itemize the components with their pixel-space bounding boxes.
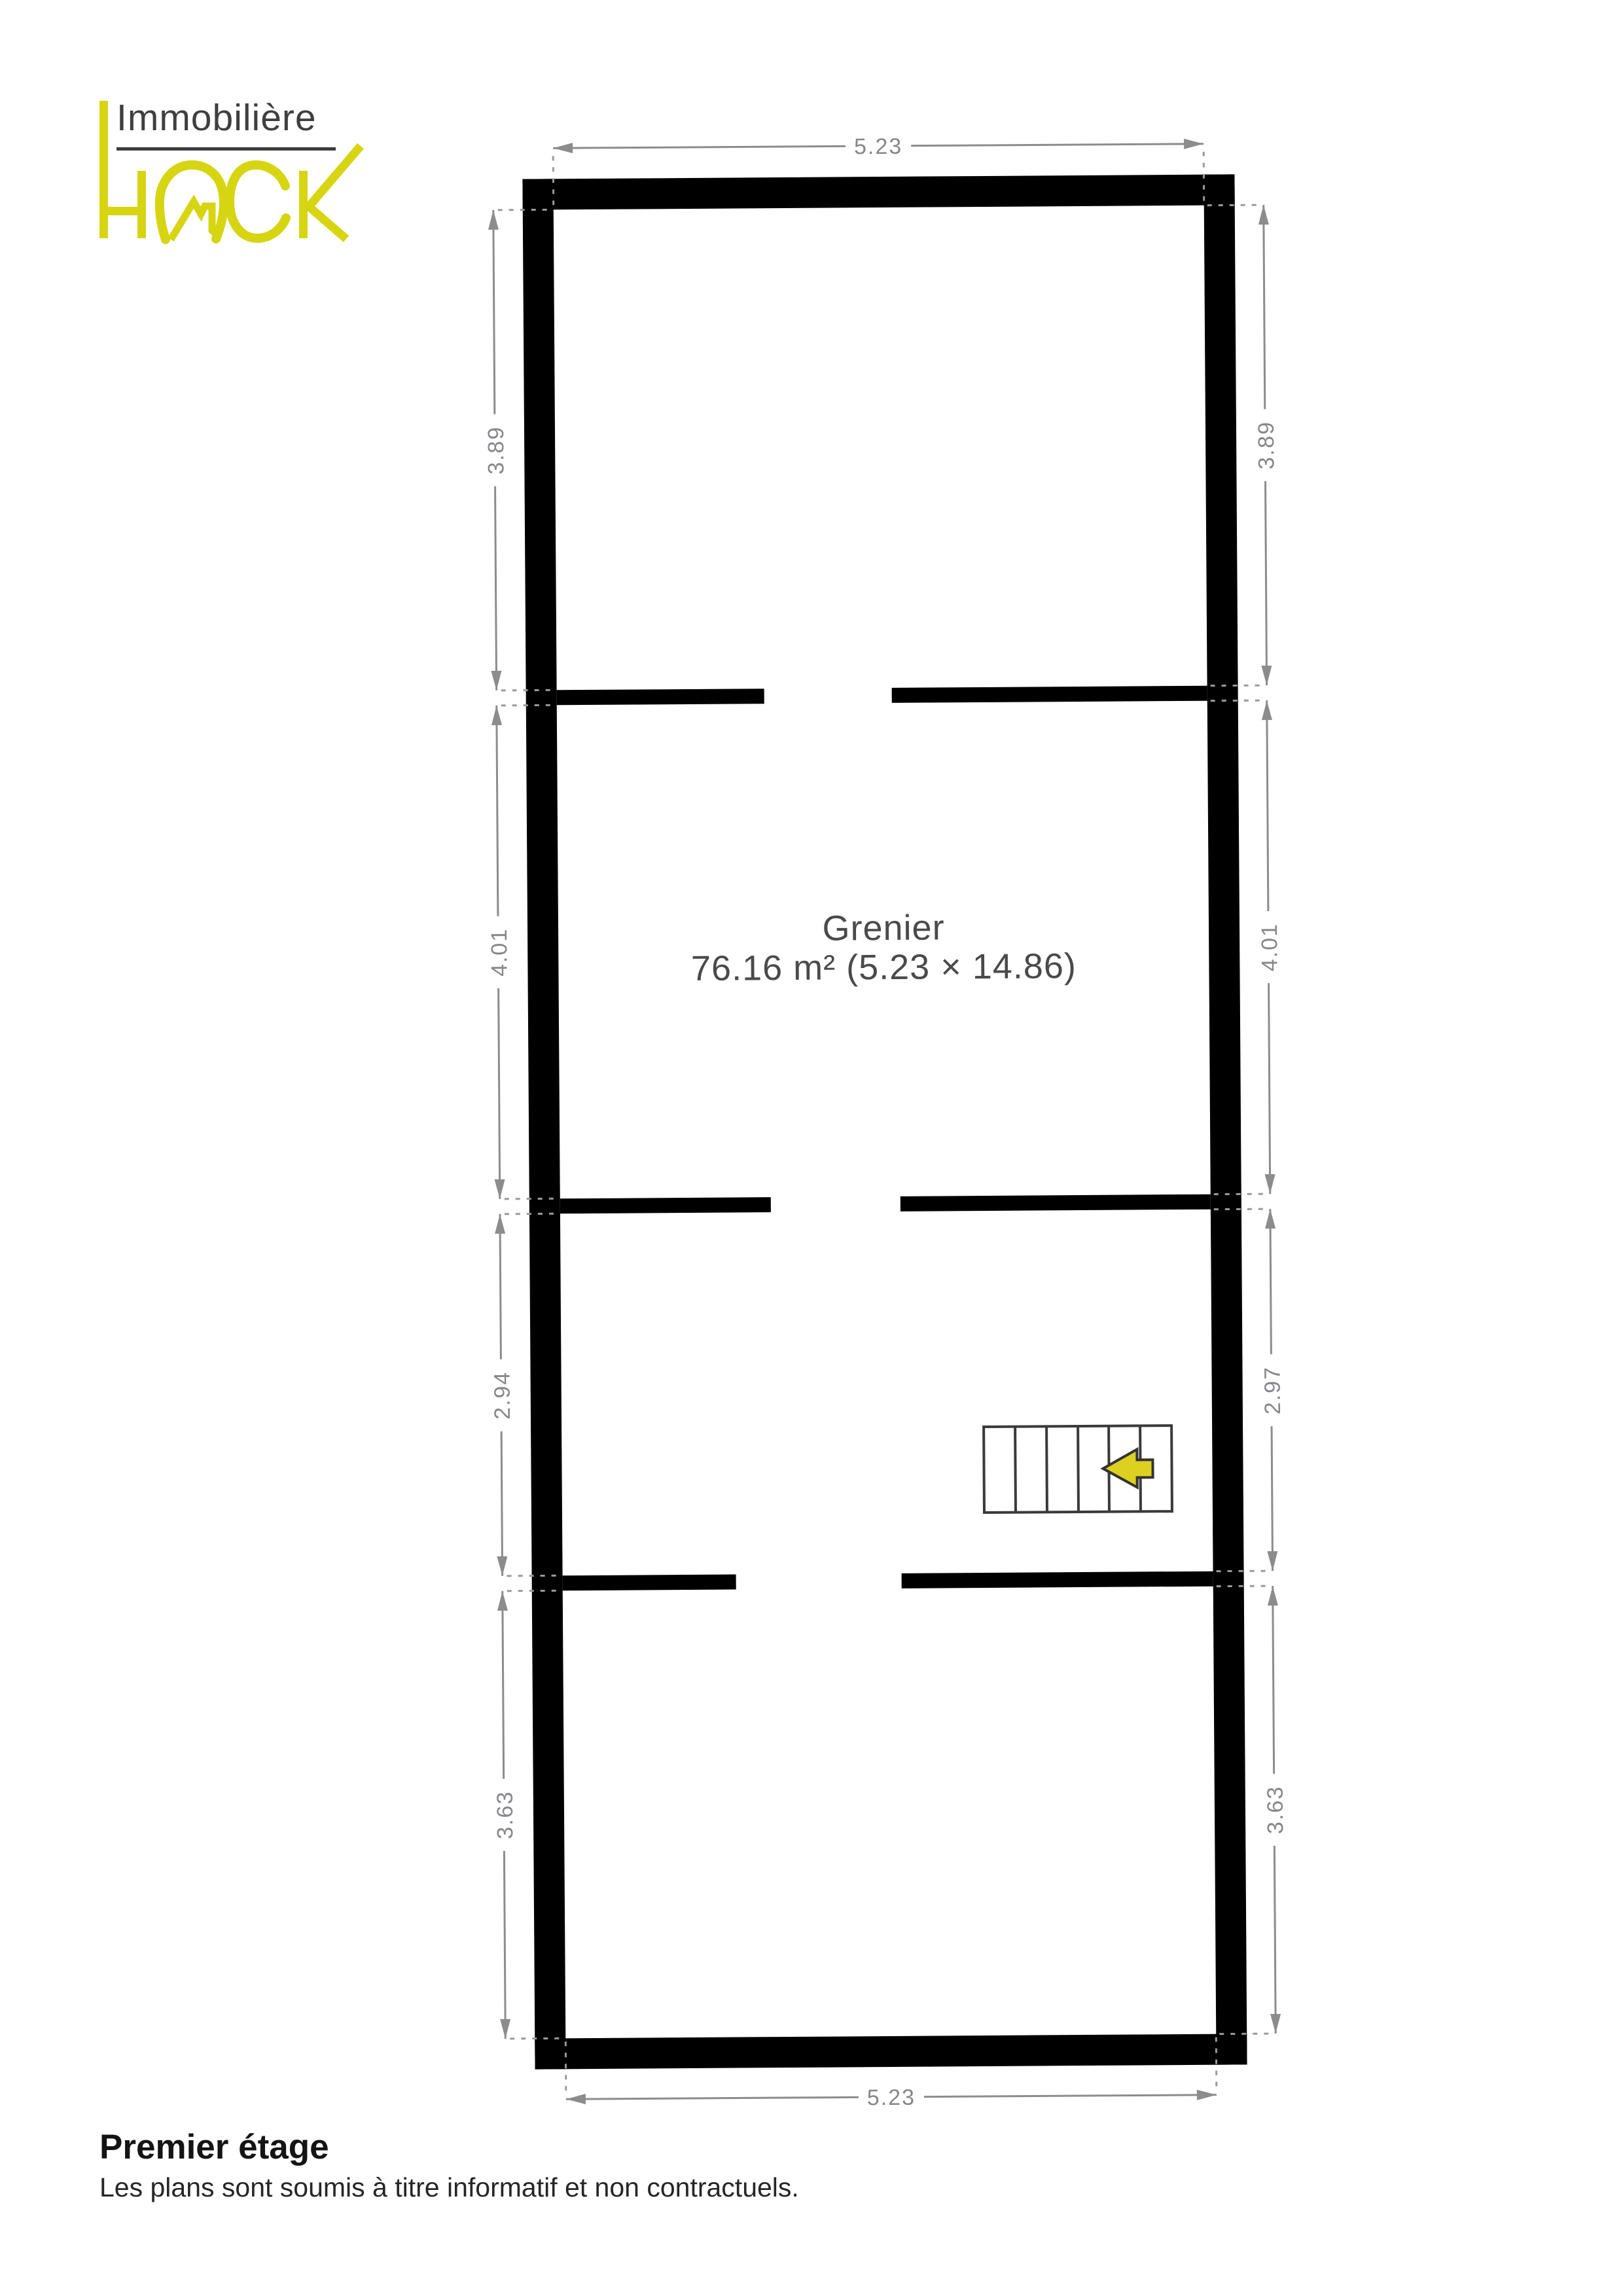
logo-hack-wordmark [99, 146, 361, 240]
logo-divider [116, 147, 336, 151]
dimension-line [495, 486, 497, 691]
dimension-label-bottom: 5.23 [867, 2085, 916, 2110]
wall-segment [902, 1571, 1213, 1588]
dimension-label-right-1: 3.89 [1254, 421, 1279, 469]
dimension-line [493, 210, 495, 414]
dimension-label-left-3: 2.94 [490, 1371, 515, 1420]
staircase [984, 1426, 1172, 1513]
exterior-walls [522, 174, 1247, 2069]
dimension-label-right-3: 2.97 [1260, 1366, 1285, 1414]
dimension-arrowhead [1261, 666, 1272, 685]
dimension-label-right-2: 4.01 [1257, 923, 1282, 971]
logo-letter-h [137, 171, 146, 238]
dimension-label-left-4: 3.63 [493, 1791, 518, 1839]
dimension-line [504, 1851, 505, 2039]
wall-segment [901, 1194, 1211, 1211]
dimension-arrowhead [1262, 700, 1272, 720]
wall-segment [522, 174, 1234, 209]
dimension-line [499, 988, 500, 1199]
dimension-arrowhead [1267, 1551, 1277, 1571]
logo-letter-h-bar [99, 207, 146, 215]
wall-segment [560, 1197, 771, 1213]
dimension-arrowhead [1197, 2090, 1217, 2100]
logo-letter-c [230, 165, 286, 238]
dimension-line [1264, 205, 1265, 409]
dimension-line [924, 2095, 1217, 2097]
dimension-arrowhead [491, 706, 502, 725]
room-name: Grenier [822, 908, 944, 948]
dimension-line [1272, 1426, 1272, 1571]
dimension-arrowhead [1270, 2014, 1281, 2034]
dimension-line [1274, 1846, 1275, 2034]
logo-accent-bar [99, 101, 108, 238]
dimension-arrowhead [1184, 139, 1204, 149]
room-area: 76.16 m² (5.23 × 14.86) [691, 946, 1077, 988]
logo-brand-name: Immobilière [116, 97, 317, 139]
dimension-line [1267, 700, 1268, 911]
logo-roofline-icon [171, 202, 217, 240]
dimension-line [566, 2097, 859, 2099]
dimension-line [1266, 481, 1267, 685]
dimension-line [1270, 1209, 1271, 1354]
dimension-line [497, 706, 498, 916]
wall-segment [1204, 174, 1247, 2064]
floor-title: Premier étage [99, 2128, 329, 2166]
dimension-arrowhead [1265, 1174, 1275, 1194]
dimension-arrowhead [497, 1556, 507, 1576]
floor-plan: Grenier 76.16 m² (5.23 × 14.86) 5.23 [482, 132, 1290, 2113]
dimension-line [500, 1214, 501, 1359]
logo-letter-k-lower [307, 205, 346, 239]
dimension-label-left-1: 3.89 [484, 426, 508, 475]
logo-letter-k-upper [307, 146, 361, 209]
stair-tread-line [1046, 1426, 1047, 1512]
dimension-arrowhead [1258, 205, 1269, 224]
stair-tread-line [1015, 1427, 1016, 1513]
dimension-arrowhead [495, 1179, 505, 1199]
dimension-arrowhead [1268, 1586, 1278, 1605]
dimension-arrowhead [491, 671, 501, 691]
wall-segment [563, 1575, 736, 1591]
dimension-label-left-2: 4.01 [487, 928, 512, 977]
logo: Immobilière [99, 97, 361, 240]
dimension-label-top: 5.23 [854, 134, 902, 159]
dimension-arrowhead [497, 1591, 508, 1611]
floor-plan-canvas: Immobilière [0, 0, 1623, 2296]
stair-tread-line [1078, 1426, 1079, 1512]
dimension-arrowhead [488, 210, 499, 230]
room-label: Grenier 76.16 m² (5.23 × 14.86) [690, 907, 1077, 988]
wall-segment [557, 689, 764, 705]
wall-segment [522, 179, 565, 2069]
dimension-arrowhead [553, 143, 573, 153]
wall-segment [535, 2034, 1247, 2069]
dimension-arrowhead [566, 2094, 586, 2104]
wall-segment [892, 686, 1207, 703]
dimension-arrowhead [495, 1214, 505, 1234]
dimension-line [1269, 983, 1270, 1194]
dimension-arrowhead [500, 2019, 510, 2039]
dimension-label-right-4: 3.63 [1263, 1785, 1288, 1834]
dimension-line [501, 1431, 502, 1576]
dimension-line [553, 146, 846, 148]
footer: Premier étage Les plans sont soumis à ti… [99, 2128, 799, 2202]
dimension-line [1273, 1586, 1274, 1774]
dimension-line [911, 144, 1204, 146]
dimension-line [503, 1591, 504, 1779]
dimension-arrowhead [1265, 1209, 1275, 1229]
disclaimer: Les plans sont soumis à titre informatif… [99, 2172, 799, 2202]
